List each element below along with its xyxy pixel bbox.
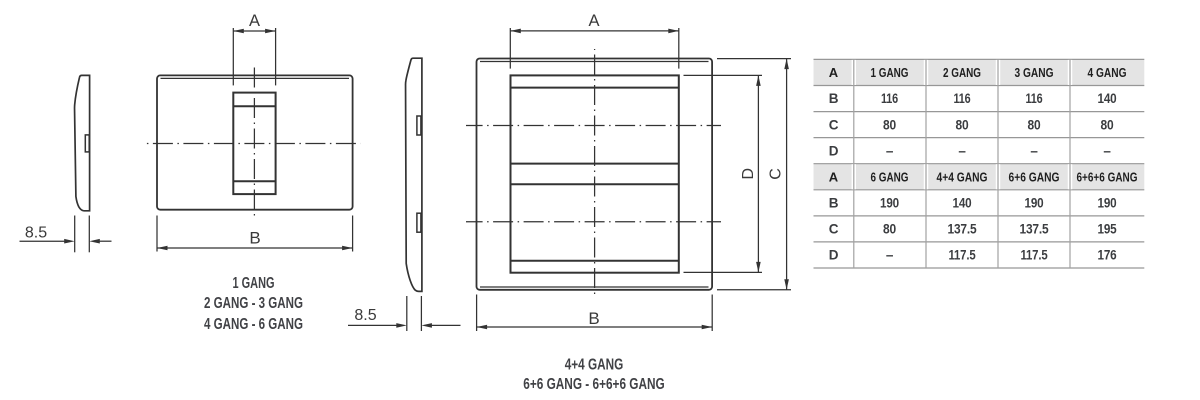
svg-text:117.5: 117.5 [949,248,977,263]
svg-text:140: 140 [953,196,972,211]
svg-text:A: A [829,170,839,185]
svg-text:4 GANG - 6 GANG: 4 GANG - 6 GANG [204,316,303,333]
svg-text:D: D [740,168,757,180]
svg-text:140: 140 [1098,91,1117,106]
svg-text:2 GANG - 3 GANG: 2 GANG - 3 GANG [204,295,303,312]
svg-text:137.5: 137.5 [1020,222,1050,237]
svg-text:80: 80 [883,222,896,237]
svg-text:3 GANG: 3 GANG [1015,65,1054,80]
svg-text:6+6 GANG: 6+6 GANG [1009,170,1060,185]
svg-text:D: D [829,248,839,263]
svg-text:80: 80 [1101,117,1114,132]
svg-text:A: A [829,65,839,80]
svg-text:–: – [886,248,894,263]
svg-text:4 GANG: 4 GANG [1088,65,1127,80]
svg-text:C: C [829,117,839,132]
svg-text:80: 80 [956,117,969,132]
svg-text:B: B [829,91,839,106]
svg-text:–: – [886,143,894,158]
svg-text:6+6+6 GANG: 6+6+6 GANG [1077,170,1138,185]
svg-text:80: 80 [883,117,896,132]
svg-text:1 GANG: 1 GANG [871,65,909,80]
svg-text:80: 80 [1028,117,1041,132]
svg-text:–: – [958,143,966,158]
svg-text:6+6 GANG - 6+6+6 GANG: 6+6 GANG - 6+6+6 GANG [523,376,665,393]
svg-text:117.5: 117.5 [1021,248,1049,263]
svg-text:4+4 GANG: 4+4 GANG [565,357,624,374]
svg-text:B: B [829,196,839,211]
svg-text:1 GANG: 1 GANG [233,275,275,292]
svg-text:137.5: 137.5 [948,222,978,237]
svg-text:190: 190 [880,196,899,211]
svg-text:D: D [829,143,839,158]
svg-text:–: – [1103,143,1111,158]
svg-text:116: 116 [954,91,972,106]
svg-text:B: B [249,229,260,248]
svg-text:8.5: 8.5 [354,307,376,324]
svg-text:195: 195 [1098,222,1118,237]
svg-text:2 GANG: 2 GANG [943,65,981,80]
svg-text:C: C [829,222,839,237]
svg-text:4+4 GANG: 4+4 GANG [937,170,988,185]
svg-text:190: 190 [1098,196,1117,211]
svg-text:A: A [249,12,260,30]
svg-text:116: 116 [1026,91,1044,106]
svg-text:176: 176 [1098,248,1118,263]
svg-text:116: 116 [881,91,899,106]
svg-text:–: – [1030,143,1038,158]
svg-text:C: C [768,168,785,180]
svg-text:6 GANG: 6 GANG [871,170,909,185]
svg-text:A: A [588,12,599,30]
svg-text:190: 190 [1025,196,1044,211]
svg-text:8.5: 8.5 [25,225,47,242]
svg-text:B: B [588,309,599,328]
